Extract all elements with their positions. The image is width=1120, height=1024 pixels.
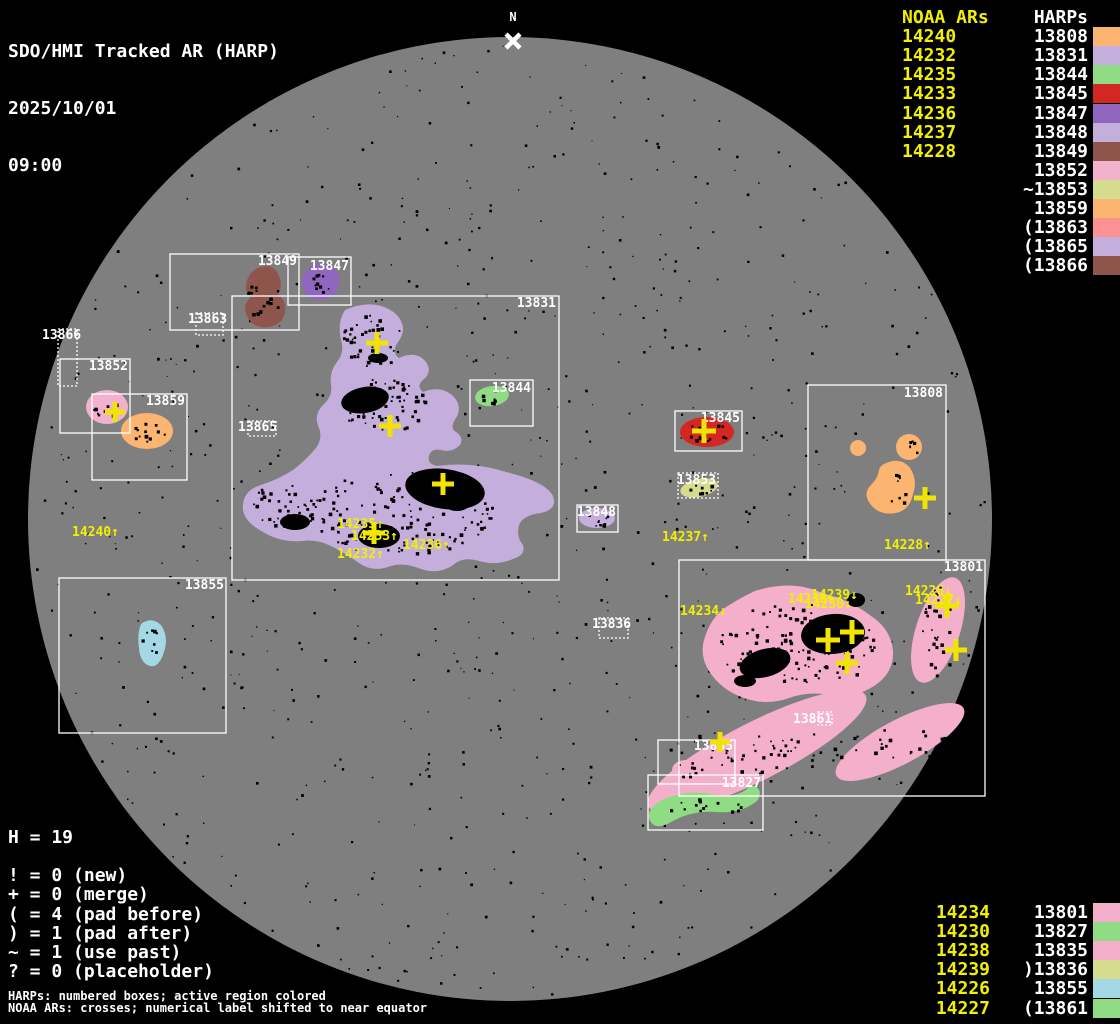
harp-box-label-13836: 13836 (592, 617, 631, 632)
legend-row-harp-13861: 14227(13861 (900, 998, 1120, 1017)
harp-region-13808 (850, 440, 866, 456)
harp-number: 13847 (1000, 104, 1088, 123)
harp-box-label-13847: 13847 (310, 259, 349, 274)
harp-color-chip (1093, 161, 1120, 180)
harp-box-label-13845: 13845 (701, 411, 740, 426)
header-block: SDO/HMI Tracked AR (HARP) 2025/10/01 09:… (8, 4, 279, 213)
harp-count: H = 19 (8, 828, 214, 847)
noaa-ar-number: 14236 (902, 104, 1000, 123)
harp-box-label-13866: 13866 (42, 328, 81, 343)
harp-box-label-13853: 13853 (677, 473, 716, 488)
legend-row-harp-13852: 13852 (902, 161, 1120, 180)
noaa-label-14239: 14239↓ (811, 588, 858, 603)
harp-color-chip (1093, 922, 1120, 941)
harp-color-chip (1093, 903, 1120, 922)
stat-line: + = 0 (merge) (8, 885, 214, 904)
noaa-label-14237: 14237↑ (662, 530, 709, 545)
harp-region-13859 (121, 413, 173, 449)
legend-top-right-header: NOAA ARs HARPs (902, 8, 1120, 27)
solar-harp-plot: 1386613852138591384913847138631383113844… (0, 0, 1120, 1024)
harp-box-label-13808: 13808 (904, 386, 943, 401)
legend-row-harp-13835: 1423813835 (900, 941, 1120, 960)
stat-line: ( = 4 (pad before) (8, 905, 214, 924)
noaa-ar-number: 14233 (902, 84, 1000, 103)
noaa-ars-header: NOAA ARs (902, 8, 1000, 27)
harp-number: 13801 (990, 903, 1088, 922)
legend-row-harp-13865: (13865 (902, 237, 1120, 256)
legend-top-right: NOAA ARs HARPs 1424013808142321383114235… (902, 8, 1120, 275)
harp-color-chip (1093, 84, 1120, 103)
harp-color-chip (1093, 65, 1120, 84)
harp-color-chip (1093, 999, 1120, 1018)
harp-number: 13845 (1000, 84, 1088, 103)
harp-number: 13859 (1000, 199, 1088, 218)
harp-box-label-13865: 13865 (238, 420, 277, 435)
harp-number: 13831 (1000, 46, 1088, 65)
noaa-ar-number: 14238 (900, 941, 990, 960)
harp-number: 13848 (1000, 123, 1088, 142)
plot-title: SDO/HMI Tracked AR (HARP) (8, 42, 279, 61)
noaa-ar-number: 14237 (902, 123, 1000, 142)
harp-color-chip (1093, 123, 1120, 142)
harp-color-chip (1093, 218, 1120, 237)
harp-number: 13835 (990, 941, 1088, 960)
legend-row-harp-13859: 13859 (902, 199, 1120, 218)
harp-box-label-13827: 13827 (722, 776, 761, 791)
harp-color-chip (1093, 237, 1120, 256)
harps-header: HARPs (1000, 8, 1088, 27)
harp-number: (13863 (1000, 218, 1088, 237)
harp-number: 13844 (1000, 65, 1088, 84)
harp-number: (13861 (990, 999, 1088, 1018)
noaa-ar-number: 14227 (900, 999, 990, 1018)
legend-row-harp-13863: (13863 (902, 218, 1120, 237)
harp-number: ~13853 (1000, 180, 1088, 199)
harp-number: )13836 (990, 960, 1088, 979)
harp-color-chip (1093, 941, 1120, 960)
harp-color-chip (1093, 180, 1120, 199)
legend-row-harp-13836: 14239)13836 (900, 960, 1120, 979)
noaa-label-14233: 14233↑ (351, 529, 398, 544)
north-label: N (509, 10, 516, 24)
stat-line: ) = 1 (pad after) (8, 924, 214, 943)
legend-row-harp-13848: 1423713848 (902, 123, 1120, 142)
legend-row-harp-13808: 1424013808 (902, 27, 1120, 46)
stat-line: ~ = 1 (use past) (8, 943, 214, 962)
noaa-ar-number: 14230 (900, 922, 990, 941)
harp-number: 13855 (990, 979, 1088, 998)
harp-number: (13866 (1000, 256, 1088, 275)
noaa-label-14236: 14236↑ (403, 538, 450, 553)
noaa-ar-number: 14239 (900, 960, 990, 979)
obs-time: 09:00 (8, 156, 279, 175)
harp-color-chip (1093, 104, 1120, 123)
noaa-ar-number: 14228 (902, 142, 1000, 161)
harp-box-label-13801: 13801 (944, 560, 983, 575)
harp-box-label-13852: 13852 (89, 359, 128, 374)
legend-row-harp-13847: 1423613847 (902, 103, 1120, 122)
legend-row-harp-13845: 1423313845 (902, 84, 1120, 103)
harp-number: 13849 (1000, 142, 1088, 161)
harp-box-label-13844: 13844 (492, 381, 531, 396)
stats-block: H = 19 ! = 0 (new)+ = 0 (merge)( = 4 (pa… (8, 828, 214, 982)
legend-row-harp-13827: 1423013827 (900, 922, 1120, 941)
legend-row-harp-13801: 1423413801 (900, 903, 1120, 922)
harp-box-label-13831: 13831 (517, 296, 556, 311)
noaa-label-14227: 14227↓ (915, 593, 962, 608)
noaa-ar-number: 14234 (900, 903, 990, 922)
legend-row-harp-13844: 1423513844 (902, 65, 1120, 84)
noaa-label-14234: 14234↓ (680, 604, 727, 619)
footnotes: HARPs: numbered boxes; active region col… (8, 990, 427, 1014)
harp-color-chip (1093, 142, 1120, 161)
noaa-ar-number: 14240 (902, 27, 1000, 46)
noaa-label-14232: 14232↑ (337, 547, 384, 562)
legend-row-harp-13849: 1422813849 (902, 142, 1120, 161)
legend-row-harp-13853: ~13853 (902, 180, 1120, 199)
noaa-ar-number: 14235 (902, 65, 1000, 84)
harp-number: 13808 (1000, 27, 1088, 46)
noaa-label-14240: 14240↑ (72, 525, 119, 540)
harp-box-label-13855: 13855 (185, 578, 224, 593)
harp-box-label-13863: 13863 (188, 312, 227, 327)
harp-color-chip (1093, 256, 1120, 275)
legend-row-harp-13866: (13866 (902, 256, 1120, 275)
harp-color-chip (1093, 46, 1120, 65)
harp-box-label-13848: 13848 (577, 505, 616, 520)
harp-region-13835 (672, 760, 700, 780)
legend-bottom-right: 14234138011423013827142381383514239)1383… (900, 903, 1120, 1018)
harp-number: 13827 (990, 922, 1088, 941)
stat-line: ! = 0 (new) (8, 866, 214, 885)
harp-region-13808 (896, 434, 922, 460)
harp-box-label-13861: 13861 (793, 712, 832, 727)
obs-date: 2025/10/01 (8, 99, 279, 118)
noaa-ar-number: 14226 (900, 979, 990, 998)
legend-row-harp-13855: 1422613855 (900, 979, 1120, 998)
harp-color-chip (1093, 979, 1120, 998)
harp-region-13801 (758, 713, 786, 741)
harp-color-chip (1093, 960, 1120, 979)
stat-line: ? = 0 (placeholder) (8, 962, 214, 981)
noaa-ar-number: 14232 (902, 46, 1000, 65)
harp-color-chip (1093, 199, 1120, 218)
noaa-label-14228: 14228↑ (884, 538, 931, 553)
harp-number: 13852 (1000, 161, 1088, 180)
harp-number: (13865 (1000, 237, 1088, 256)
harp-box-label-13849: 13849 (258, 254, 297, 269)
harp-color-chip (1093, 27, 1120, 46)
footnote-line: NOAA ARs: crosses; numerical label shift… (8, 1002, 427, 1014)
legend-row-harp-13831: 1423213831 (902, 46, 1120, 65)
harp-box-label-13859: 13859 (146, 394, 185, 409)
